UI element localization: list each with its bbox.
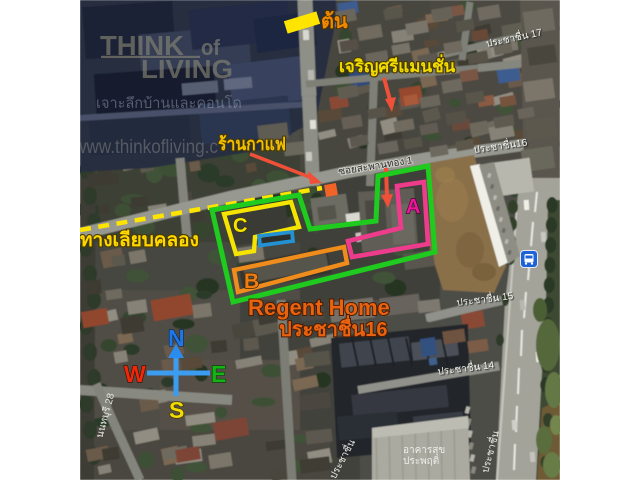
svg-text:ร้านกาแฟ: ร้านกาแฟ bbox=[218, 134, 286, 154]
svg-text:B: B bbox=[244, 270, 259, 293]
svg-text:ทางเลียบคลอง: ทางเลียบคลอง bbox=[80, 229, 199, 251]
svg-text:เจริญศรีแมนชั่น: เจริญศรีแมนชั่น bbox=[339, 54, 456, 77]
svg-text:N: N bbox=[168, 325, 185, 351]
svg-text:S: S bbox=[169, 397, 184, 423]
svg-text:LIVING: LIVING bbox=[141, 54, 233, 84]
svg-text:A: A bbox=[406, 196, 420, 218]
svg-text:อาคารสุข: อาคารสุข bbox=[403, 445, 445, 456]
svg-text:ต้น: ต้น bbox=[321, 10, 348, 33]
svg-text:www.thinkofliving.c: www.thinkofliving.c bbox=[73, 137, 218, 158]
svg-text:ประชาชื่น16: ประชาชื่น16 bbox=[279, 314, 387, 341]
svg-text:Regent Home: Regent Home bbox=[248, 295, 390, 320]
svg-text:C: C bbox=[233, 215, 247, 237]
svg-text:เจาะลึกบ้านและคอนโด: เจาะลึกบ้านและคอนโด bbox=[96, 94, 242, 112]
svg-text:W: W bbox=[124, 361, 146, 387]
svg-text:E: E bbox=[211, 361, 226, 387]
svg-text:ประพฤติ: ประพฤติ bbox=[403, 456, 439, 467]
